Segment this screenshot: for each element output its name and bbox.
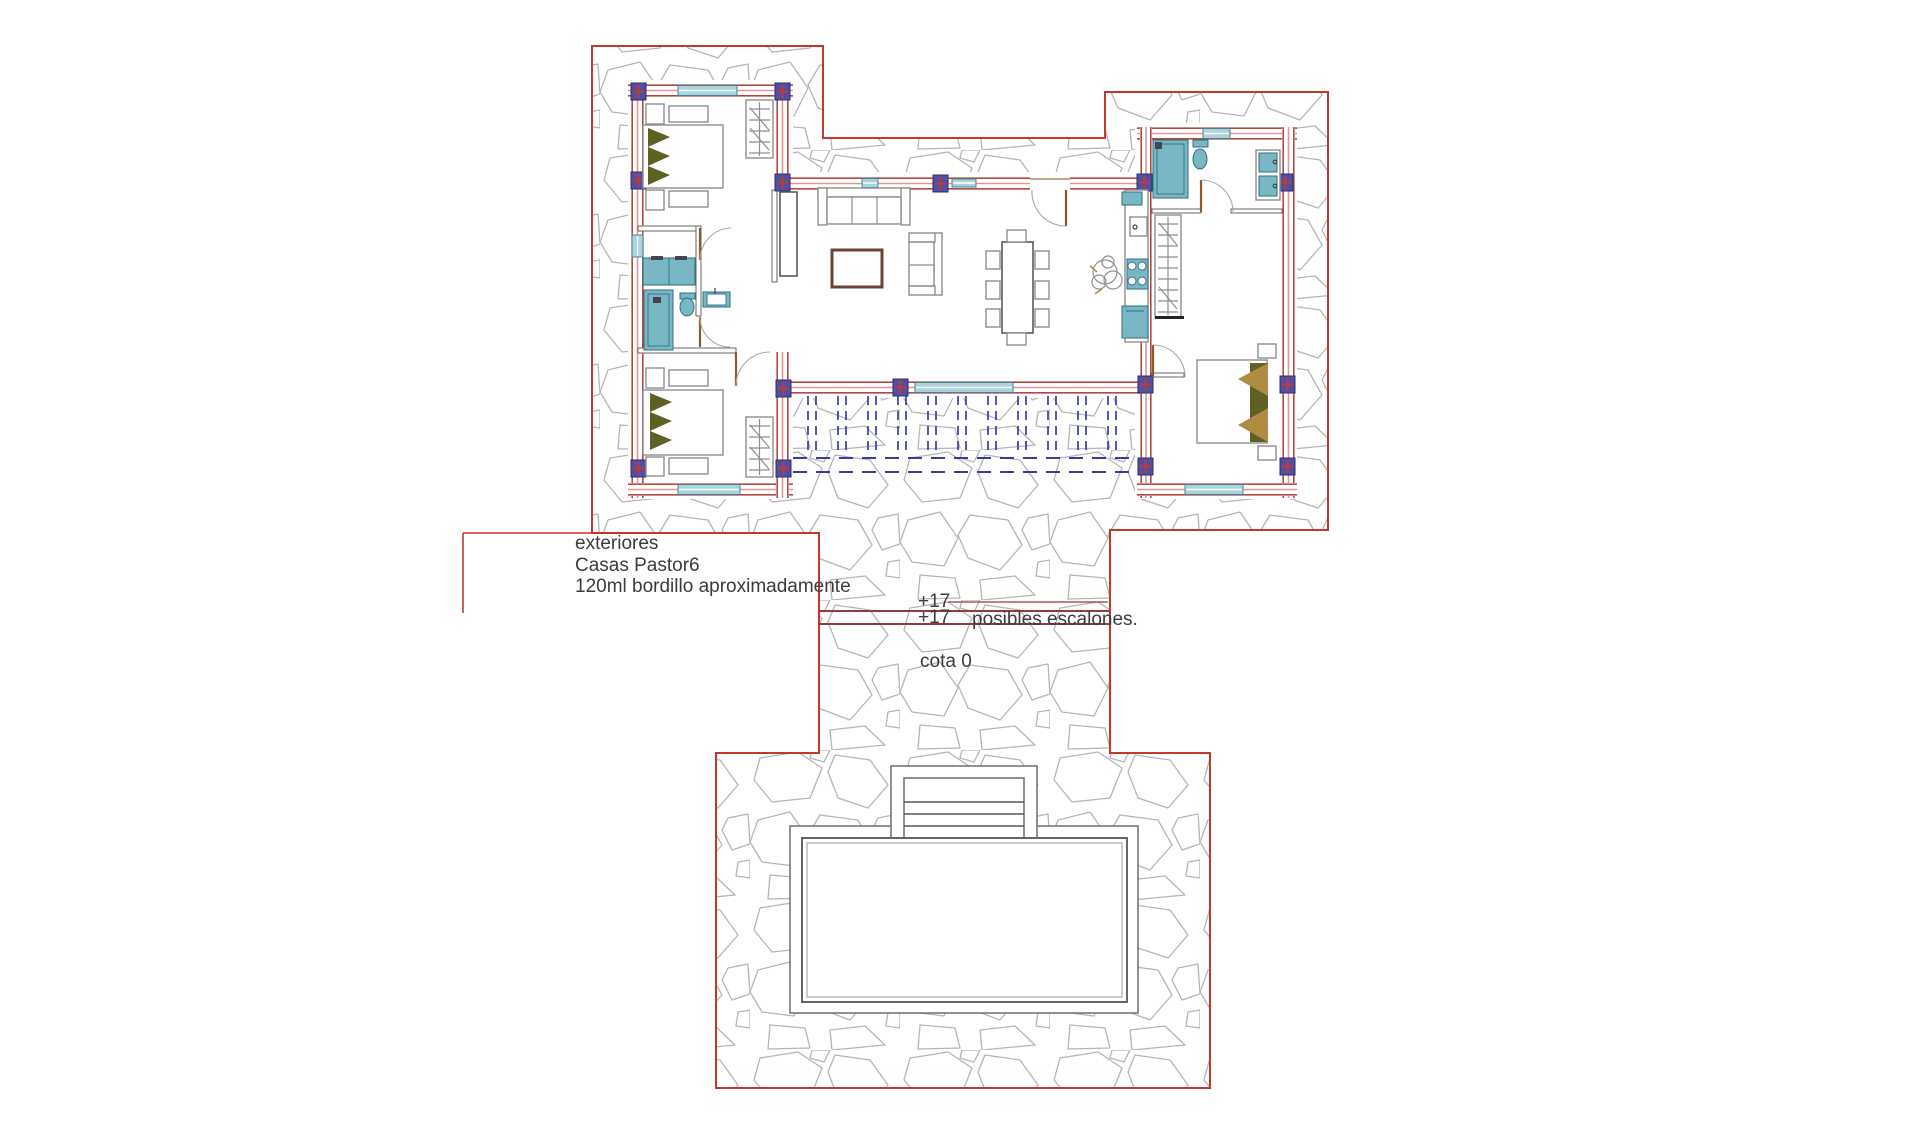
label-steps-note: posibles escalones.	[972, 609, 1138, 630]
label-curb-note: 120ml bordillo aproximadamente	[575, 576, 851, 597]
label-project-name: Casas Pastor6	[575, 555, 700, 576]
label-datum: cota 0	[920, 651, 972, 672]
label-level-lower: +17	[918, 607, 950, 628]
floor-plan-drawing: exteriores Casas Pastor6 120ml bordillo …	[0, 0, 1920, 1140]
label-exteriores: exteriores	[575, 533, 658, 554]
floor-plan-page: exteriores Casas Pastor6 120ml bordillo …	[0, 0, 1920, 1140]
room-master-bedroom	[1197, 344, 1276, 460]
